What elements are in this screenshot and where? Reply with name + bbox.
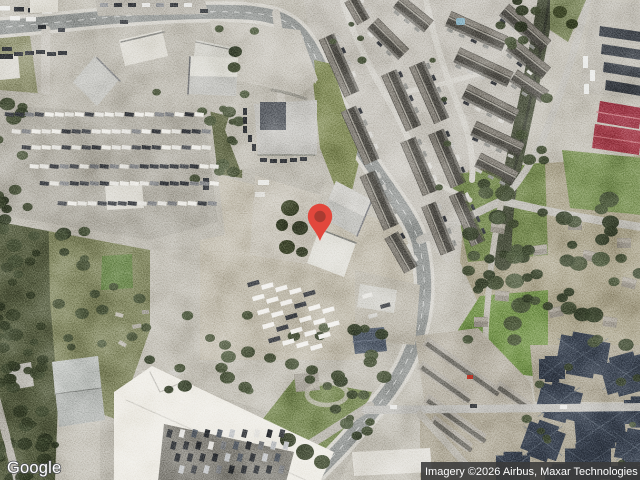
svg-text:Google: Google <box>7 459 61 477</box>
svg-text:Imagery ©2026 Airbus, Maxar Te: Imagery ©2026 Airbus, Maxar Technologies <box>425 466 638 478</box>
